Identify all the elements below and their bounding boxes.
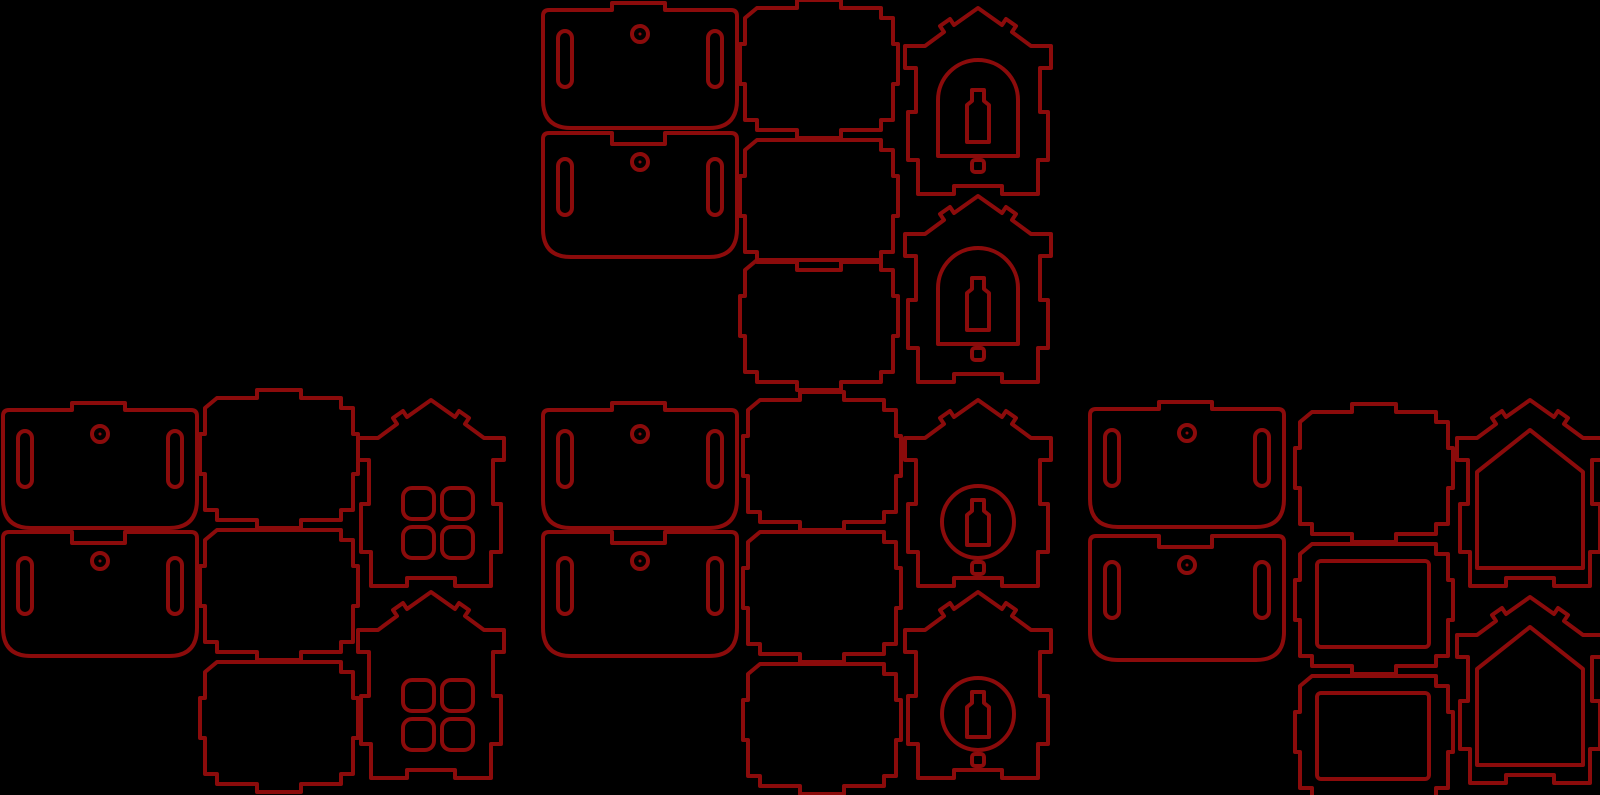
- wall-panel: [740, 0, 898, 138]
- gable-arch-window: [905, 8, 1051, 194]
- house-window-cutout: [1477, 627, 1583, 765]
- gable-four-window: [358, 400, 504, 586]
- gable-house-window: [1457, 400, 1600, 586]
- square-window-hole: [403, 680, 434, 711]
- roof-slot: [708, 31, 722, 87]
- gable-outline: [905, 196, 1051, 382]
- roof-slot: [1255, 430, 1269, 486]
- wall-outline: [743, 532, 901, 662]
- wall-panel: [743, 392, 901, 530]
- hang-hole-center-mark: [99, 560, 102, 563]
- wall-outline: [743, 664, 901, 794]
- hang-hole-center-mark: [1186, 432, 1189, 435]
- hang-hole-center-mark: [1186, 564, 1189, 567]
- small-square-hole: [972, 348, 984, 360]
- gable-arch-window: [905, 196, 1051, 382]
- circle-window-cutout: [942, 678, 1014, 750]
- roof-slot: [168, 558, 182, 614]
- roof-slot: [708, 431, 722, 487]
- laser-cut-layout-canvas: [0, 0, 1600, 795]
- roof-slot: [708, 558, 722, 614]
- circle-window-cutout: [942, 486, 1014, 558]
- roof-slot: [168, 431, 182, 487]
- bottle-cutout: [967, 500, 989, 545]
- wall-outline: [740, 140, 898, 270]
- small-square-hole: [972, 562, 984, 574]
- roof-panel-tab: [3, 403, 197, 528]
- window-cutout: [1317, 561, 1429, 647]
- wall-outline: [200, 530, 358, 660]
- wall-panel: [743, 664, 901, 794]
- window-cutout: [1317, 693, 1429, 779]
- wall-outline: [743, 392, 901, 530]
- square-window-hole: [442, 680, 473, 711]
- roof-panel-notch: [1090, 536, 1284, 660]
- roof-panel-tab: [543, 403, 737, 528]
- roof-slot: [558, 558, 572, 614]
- square-window-hole: [442, 488, 473, 519]
- roof-panel-notch: [543, 532, 737, 656]
- wall-panel: [1295, 404, 1453, 542]
- gable-house-window: [1457, 597, 1600, 783]
- small-square-hole: [972, 754, 984, 766]
- house-window-cutout: [1477, 430, 1583, 568]
- small-square-hole: [972, 160, 984, 172]
- roof-slot: [708, 159, 722, 215]
- roof-slot: [18, 431, 32, 487]
- hang-hole-center-mark: [639, 433, 642, 436]
- roof-slot: [558, 159, 572, 215]
- wall-outline: [200, 662, 358, 792]
- hang-hole-center-mark: [99, 433, 102, 436]
- bottle-cutout: [967, 692, 989, 737]
- roof-panel-notch: [3, 532, 197, 656]
- gable-circle-window: [905, 400, 1051, 586]
- square-window-hole: [403, 488, 434, 519]
- wall-outline: [200, 390, 358, 528]
- wall-outline: [1295, 404, 1453, 542]
- wall-outline: [740, 260, 898, 390]
- wall-panel-window: [1295, 676, 1453, 795]
- bottle-cutout: [967, 90, 989, 142]
- bottle-cutout: [967, 278, 989, 330]
- square-window-hole: [403, 527, 434, 558]
- gable-circle-window: [905, 592, 1051, 778]
- roof-slot: [1255, 562, 1269, 618]
- wall-panel: [200, 390, 358, 528]
- wall-panel: [740, 140, 898, 270]
- wall-panel-window: [1295, 544, 1453, 674]
- wall-panel: [200, 662, 358, 792]
- hang-hole-center-mark: [639, 161, 642, 164]
- roof-slot: [1105, 430, 1119, 486]
- wall-panel: [743, 532, 901, 662]
- roof-slot: [1105, 562, 1119, 618]
- cut-sheet-background: [0, 0, 1600, 795]
- square-window-hole: [442, 527, 473, 558]
- roof-panel-notch: [543, 133, 737, 257]
- square-window-hole: [442, 719, 473, 750]
- gable-four-window: [358, 592, 504, 778]
- roof-slot: [18, 558, 32, 614]
- wall-panel: [200, 530, 358, 660]
- wall-outline: [740, 0, 898, 138]
- roof-panel-tab: [1090, 402, 1284, 527]
- hang-hole-center-mark: [639, 33, 642, 36]
- wall-panel: [740, 260, 898, 390]
- hang-hole-center-mark: [639, 560, 642, 563]
- gable-outline: [905, 8, 1051, 194]
- square-window-hole: [403, 719, 434, 750]
- roof-panel-tab: [543, 3, 737, 128]
- roof-slot: [558, 31, 572, 87]
- roof-slot: [558, 431, 572, 487]
